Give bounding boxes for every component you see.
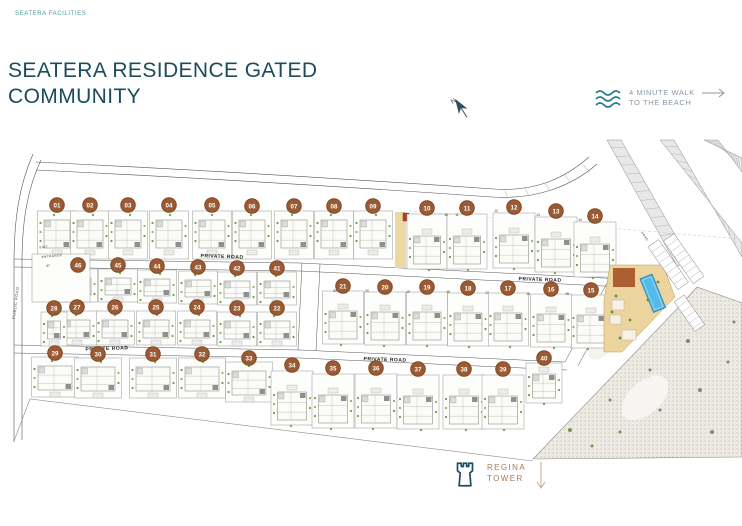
plot-circle-26[interactable]: 26	[108, 300, 123, 315]
svg-text:10: 10	[424, 205, 431, 212]
plot-circle-41[interactable]: 41	[270, 261, 285, 276]
road-label: ROAD	[640, 231, 650, 242]
plot-circle-21[interactable]: 21	[336, 279, 351, 294]
plot-corner-number: 11	[455, 213, 459, 217]
plot-circle-31[interactable]: 31	[146, 347, 161, 362]
beach-line2: TO THE BEACH	[629, 98, 691, 107]
facilities-label-text: SEATERA FACILITIES	[15, 11, 86, 17]
plot-circle-37[interactable]: 37	[411, 362, 426, 377]
svg-text:25: 25	[153, 304, 160, 311]
plot-circle-08[interactable]: 08	[327, 199, 342, 214]
svg-text:41: 41	[274, 265, 281, 272]
plot-circle-12[interactable]: 12	[507, 200, 522, 215]
plot-circle-01[interactable]: 01	[50, 198, 65, 213]
svg-text:08: 08	[331, 203, 338, 210]
plot-circle-45[interactable]: 45	[111, 258, 126, 273]
north-arrow-icon: N	[444, 90, 478, 126]
svg-text:28: 28	[51, 305, 58, 312]
svg-text:26: 26	[112, 304, 119, 311]
svg-text:45: 45	[115, 262, 122, 269]
svg-text:44: 44	[154, 263, 161, 270]
svg-text:14: 14	[592, 213, 599, 220]
plot-circle-03[interactable]: 03	[121, 198, 136, 213]
plot-circle-44[interactable]: 44	[150, 259, 165, 274]
plot-corner-number: 14	[578, 218, 582, 222]
plot-corner-number: 47	[46, 264, 50, 268]
svg-text:34: 34	[289, 362, 296, 369]
plot-circle-15[interactable]: 15	[584, 283, 599, 298]
plot-circle-38[interactable]: 38	[457, 362, 472, 377]
regina-tower-callout: REGINA TOWER	[452, 459, 547, 493]
waves-icon	[594, 88, 622, 110]
svg-text:06: 06	[249, 203, 256, 210]
plot-circle-42[interactable]: 42	[230, 261, 245, 276]
svg-text:07: 07	[291, 203, 298, 210]
title-line2: COMMUNITY	[8, 84, 318, 110]
plot-circle-13[interactable]: 13	[549, 204, 564, 219]
arrow-right-icon	[701, 88, 727, 98]
plot-circle-18[interactable]: 18	[461, 281, 476, 296]
diagonal-road	[704, 140, 742, 172]
arrow-down-icon	[535, 459, 547, 493]
plot-circle-05[interactable]: 05	[205, 198, 220, 213]
svg-text:30: 30	[95, 351, 102, 358]
plot-circle-23[interactable]: 23	[230, 301, 245, 316]
svg-text:20: 20	[382, 284, 389, 291]
svg-text:32: 32	[199, 351, 206, 358]
svg-text:35: 35	[330, 365, 337, 372]
plot-circle-14[interactable]: 14	[588, 209, 603, 224]
facilities-label: SEATERA FACILITIES	[15, 11, 86, 17]
svg-text:16: 16	[548, 286, 555, 293]
svg-text:21: 21	[340, 283, 347, 290]
plot-circle-43[interactable]: 43	[191, 260, 206, 275]
north-arrow: N	[444, 90, 478, 131]
svg-text:46: 46	[75, 262, 82, 269]
road-label: PRIVATE ROAD	[200, 253, 243, 260]
svg-text:02: 02	[87, 202, 94, 209]
plot-corner-number: 16	[526, 292, 530, 296]
page-title: SEATERA RESIDENCE GATED COMMUNITY	[8, 58, 318, 110]
svg-text:15: 15	[588, 287, 595, 294]
svg-text:39: 39	[500, 366, 507, 373]
plot-circle-04[interactable]: 04	[162, 198, 177, 213]
road-label: PUBLIC ROAD	[11, 286, 20, 319]
plot-corner-number: 18	[446, 290, 450, 294]
plot-circle-33[interactable]: 33	[242, 351, 257, 366]
road-label: PRIVATE ROAD	[363, 356, 406, 363]
plot-circle-02[interactable]: 02	[83, 198, 98, 213]
svg-text:11: 11	[464, 205, 471, 212]
svg-text:17: 17	[505, 285, 512, 292]
svg-text:24: 24	[194, 304, 201, 311]
regina-line1: REGINA	[487, 462, 526, 473]
svg-text:37: 37	[415, 366, 422, 373]
plot-circle-46[interactable]: 46	[71, 258, 86, 273]
svg-text:09: 09	[370, 203, 377, 210]
plot-circle-17[interactable]: 17	[501, 281, 516, 296]
svg-text:33: 33	[246, 355, 253, 362]
plot-circle-07[interactable]: 07	[287, 199, 302, 214]
plot-circle-35[interactable]: 35	[326, 361, 341, 376]
svg-text:40: 40	[541, 355, 548, 362]
plot-corner-number: 12	[494, 209, 498, 213]
svg-text:22: 22	[274, 305, 281, 312]
plot-corner-number: 17	[485, 291, 489, 295]
plot-circle-30[interactable]: 30	[91, 347, 106, 362]
svg-text:05: 05	[209, 202, 216, 209]
beach-line1: 4 MINUTE WALK	[629, 88, 695, 98]
svg-text:43: 43	[195, 264, 202, 271]
tower-icon	[452, 459, 478, 489]
plot-circle-10[interactable]: 10	[420, 201, 435, 216]
plot-corner-number: 15	[565, 292, 569, 296]
svg-text:01: 01	[54, 202, 61, 209]
plot-circle-32[interactable]: 32	[195, 347, 210, 362]
plot-corner-number: 13	[536, 213, 540, 217]
deck-area	[613, 268, 635, 287]
svg-text:27: 27	[74, 304, 81, 311]
plot-circle-06[interactable]: 06	[245, 199, 260, 214]
svg-text:42: 42	[234, 265, 241, 272]
plot-circle-16[interactable]: 16	[544, 282, 559, 297]
plot-circle-40[interactable]: 40	[537, 351, 552, 366]
plot-circle-39[interactable]: 39	[496, 362, 511, 377]
regina-line2: TOWER	[487, 473, 526, 484]
private-road	[298, 263, 302, 350]
plot-circle-24[interactable]: 24	[190, 300, 205, 315]
svg-text:13: 13	[553, 208, 560, 215]
plot-circle-09[interactable]: 09	[366, 199, 381, 214]
plot-circle-29[interactable]: 29	[48, 346, 63, 361]
page: { "header": { "brand": "SEATERA FACILITI…	[0, 0, 742, 526]
svg-text:31: 31	[150, 351, 157, 358]
plot-circle-34[interactable]: 34	[285, 358, 300, 373]
svg-text:03: 03	[125, 202, 132, 209]
plot-circle-22[interactable]: 22	[270, 301, 285, 316]
top-road	[36, 157, 589, 189]
title-line1: SEATERA RESIDENCE GATED	[8, 58, 318, 84]
plot-circle-11[interactable]: 11	[460, 201, 475, 216]
beach-callout: 4 MINUTE WALK TO THE BEACH	[594, 88, 727, 110]
plot-circle-20[interactable]: 20	[378, 280, 393, 295]
svg-text:23: 23	[234, 305, 241, 312]
svg-text:19: 19	[424, 284, 431, 291]
svg-text:18: 18	[465, 285, 472, 292]
plot-corner-number: 19	[406, 290, 410, 294]
svg-text:36: 36	[373, 365, 380, 372]
plot-corner-number: 20	[365, 289, 369, 293]
plot-circle-28[interactable]: 28	[47, 301, 62, 316]
svg-text:29: 29	[52, 350, 59, 357]
svg-text:04: 04	[166, 202, 173, 209]
svg-text:38: 38	[461, 366, 468, 373]
plot-circle-27[interactable]: 27	[70, 300, 85, 315]
plot-circle-25[interactable]: 25	[149, 300, 164, 315]
plot-circle-36[interactable]: 36	[369, 361, 384, 376]
plot-corner-number: 10	[444, 213, 448, 217]
plot-circle-19[interactable]: 19	[420, 280, 435, 295]
svg-text:12: 12	[511, 204, 518, 211]
